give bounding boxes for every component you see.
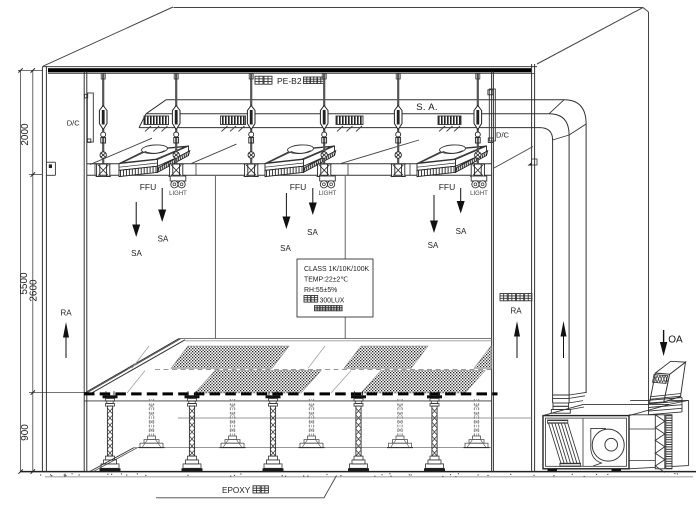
svg-text:D/C: D/C [496, 131, 510, 140]
svg-text:RH:55±5%: RH:55±5% [304, 287, 337, 294]
svg-text:RA: RA [60, 309, 72, 318]
svg-text:LIGHT: LIGHT [319, 191, 337, 197]
svg-text:2000: 2000 [20, 123, 31, 146]
svg-text:LIGHT: LIGHT [470, 191, 488, 197]
svg-text:SA: SA [428, 241, 439, 250]
svg-text:SA: SA [456, 227, 467, 236]
svg-text:900: 900 [20, 424, 31, 441]
svg-text:OA: OA [668, 335, 683, 346]
svg-text:FFU: FFU [290, 182, 307, 192]
svg-text:PE-B2: PE-B2 [277, 76, 302, 86]
svg-text:EPOXY: EPOXY [222, 486, 251, 495]
svg-text:SA: SA [307, 228, 318, 237]
svg-text:SA: SA [158, 235, 169, 244]
svg-text:RA: RA [510, 307, 522, 316]
svg-text:SA: SA [280, 244, 291, 253]
svg-text:S. A.: S. A. [416, 102, 438, 113]
svg-text:D/C: D/C [67, 118, 81, 127]
svg-text:FFU: FFU [439, 182, 456, 192]
svg-text:CLASS 1K/10K/100K: CLASS 1K/10K/100K [304, 266, 370, 273]
svg-text:FFU: FFU [140, 182, 157, 192]
svg-text:TEMP:22±2℃: TEMP:22±2℃ [304, 277, 348, 284]
svg-text:2600: 2600 [29, 279, 40, 302]
svg-text:LIGHT: LIGHT [169, 191, 187, 197]
svg-text:300LUX: 300LUX [320, 298, 345, 305]
svg-text:SA: SA [131, 249, 142, 258]
